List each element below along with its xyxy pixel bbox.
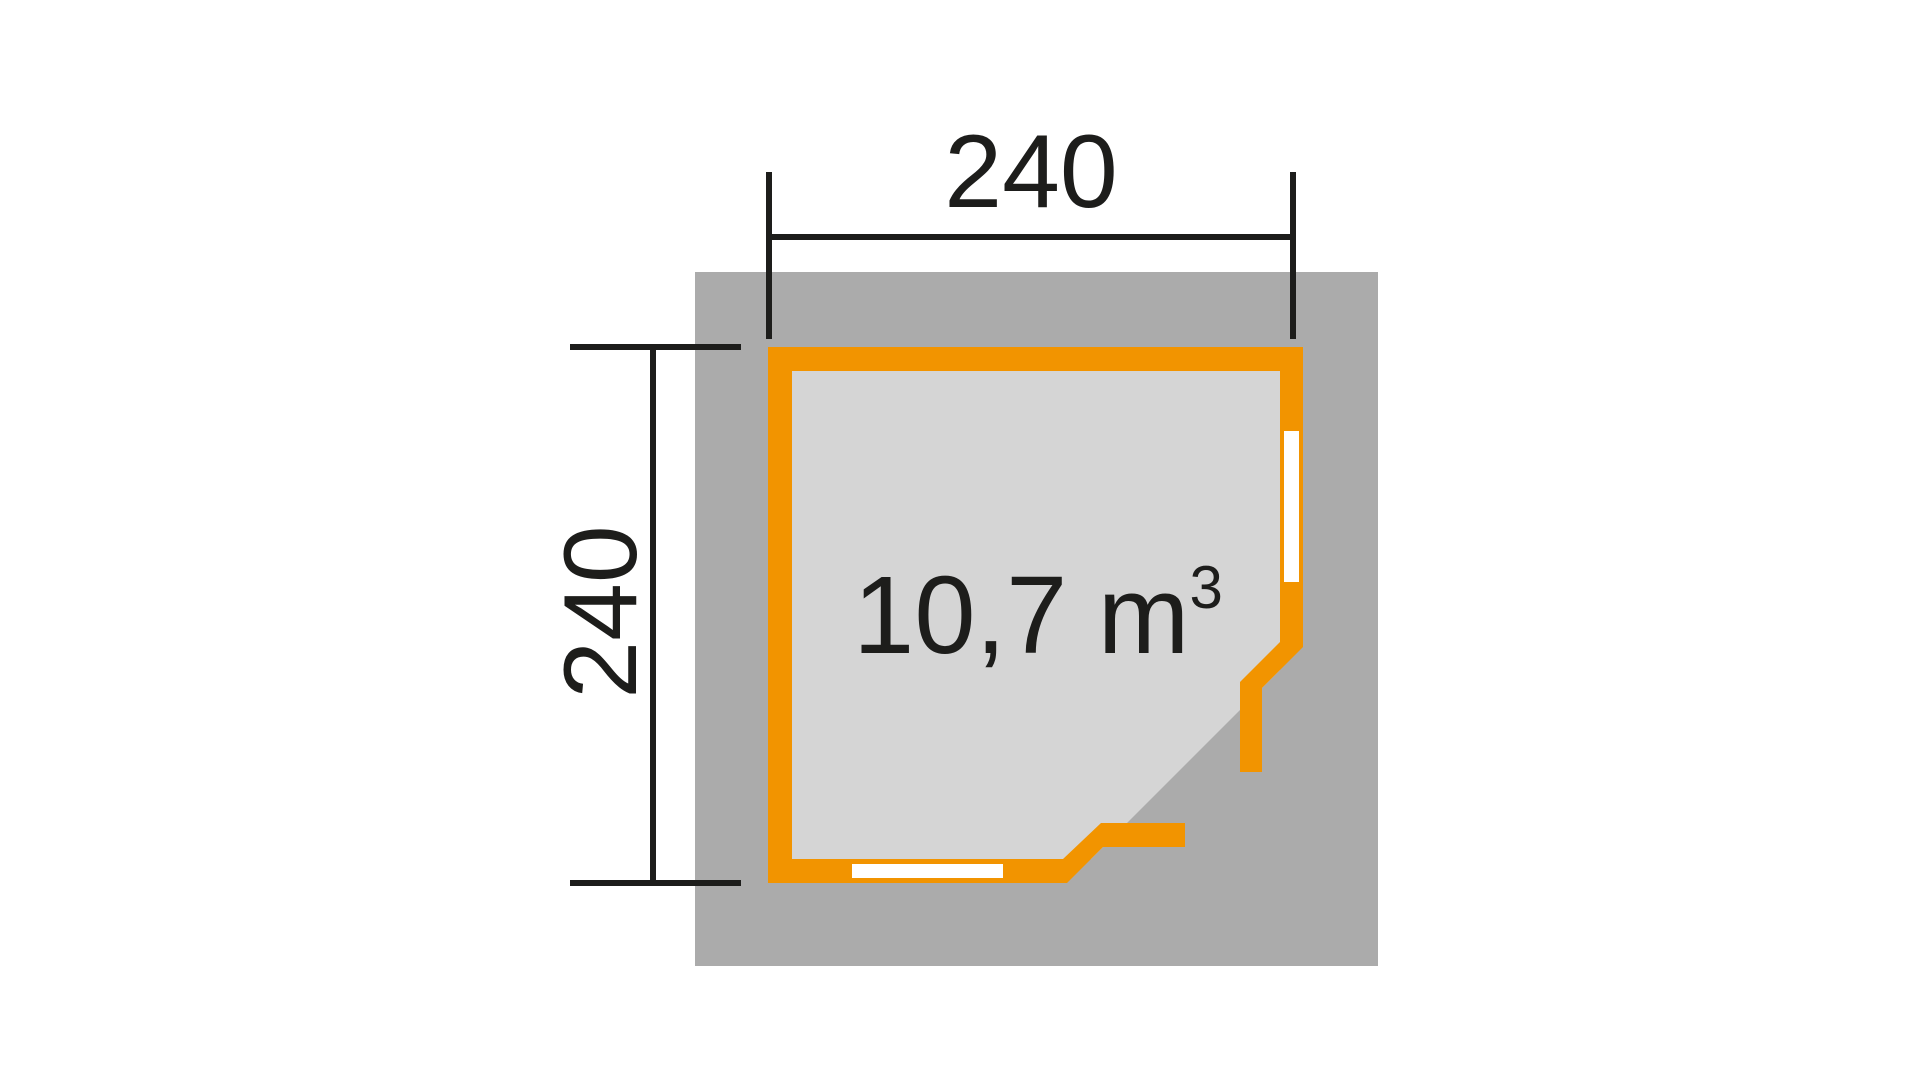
window-right [1284,431,1299,582]
volume-exponent: 3 [1189,554,1222,621]
dimension-top-label: 240 [944,114,1118,230]
floor-plan-canvas: 240 240 10,7 m3 [0,0,1920,1080]
volume-label: 10,7 m3 [853,554,1223,677]
dimension-left-label: 240 [543,525,659,699]
floor-plan-diagram: 240 240 10,7 m3 [0,0,1920,1080]
volume-value: 10,7 m [853,554,1189,677]
window-bottom [852,864,1003,878]
